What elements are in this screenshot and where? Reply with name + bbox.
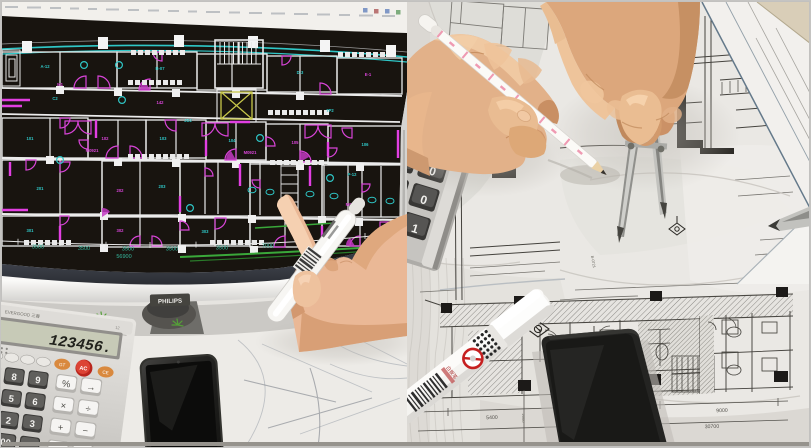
svg-text:303: 303 bbox=[202, 229, 210, 234]
svg-text:P-12: P-12 bbox=[348, 172, 358, 177]
svg-text:202: 202 bbox=[117, 188, 125, 193]
svg-text:7000: 7000 bbox=[262, 244, 274, 250]
svg-text:9000: 9000 bbox=[716, 408, 728, 414]
svg-text:5400: 5400 bbox=[486, 415, 498, 421]
svg-text:301: 301 bbox=[27, 228, 35, 233]
svg-text:104: 104 bbox=[229, 138, 237, 143]
svg-text:3500: 3500 bbox=[122, 246, 134, 252]
svg-text:102: 102 bbox=[102, 136, 110, 141]
svg-text:D-3: D-3 bbox=[297, 70, 304, 75]
svg-text:103: 103 bbox=[160, 136, 168, 141]
svg-text:M0921: M0921 bbox=[244, 150, 257, 155]
svg-text:C2: C2 bbox=[52, 96, 58, 101]
svg-text:A-12: A-12 bbox=[40, 64, 50, 69]
svg-text:2000: 2000 bbox=[521, 414, 526, 424]
svg-text:GT: GT bbox=[59, 362, 66, 368]
svg-text:302: 302 bbox=[117, 228, 125, 233]
svg-text:106: 106 bbox=[362, 142, 370, 147]
svg-text:201: 201 bbox=[37, 186, 45, 191]
svg-text:E-1: E-1 bbox=[365, 72, 372, 77]
svg-text:3500: 3500 bbox=[216, 245, 228, 251]
svg-text:CE: CE bbox=[102, 370, 109, 376]
svg-text:7P2: 7P2 bbox=[326, 108, 334, 113]
svg-text:3500: 3500 bbox=[32, 244, 44, 250]
svg-text:M0921: M0921 bbox=[86, 148, 99, 153]
svg-text:B-07: B-07 bbox=[155, 66, 165, 71]
svg-text:3500: 3500 bbox=[166, 246, 178, 252]
svg-text:101: 101 bbox=[27, 136, 35, 141]
svg-text:JD2: JD2 bbox=[184, 118, 192, 123]
svg-text:203: 203 bbox=[159, 184, 167, 189]
svg-text:142: 142 bbox=[157, 100, 165, 105]
svg-text:→: → bbox=[86, 382, 97, 394]
svg-text:30700: 30700 bbox=[705, 424, 720, 431]
svg-text:56900: 56900 bbox=[116, 254, 131, 260]
svg-text:PHILIPS: PHILIPS bbox=[158, 298, 182, 306]
svg-text:AC: AC bbox=[79, 366, 88, 373]
svg-text:105: 105 bbox=[292, 140, 300, 145]
svg-text:3500: 3500 bbox=[78, 246, 90, 252]
svg-text:M1: M1 bbox=[57, 82, 63, 87]
